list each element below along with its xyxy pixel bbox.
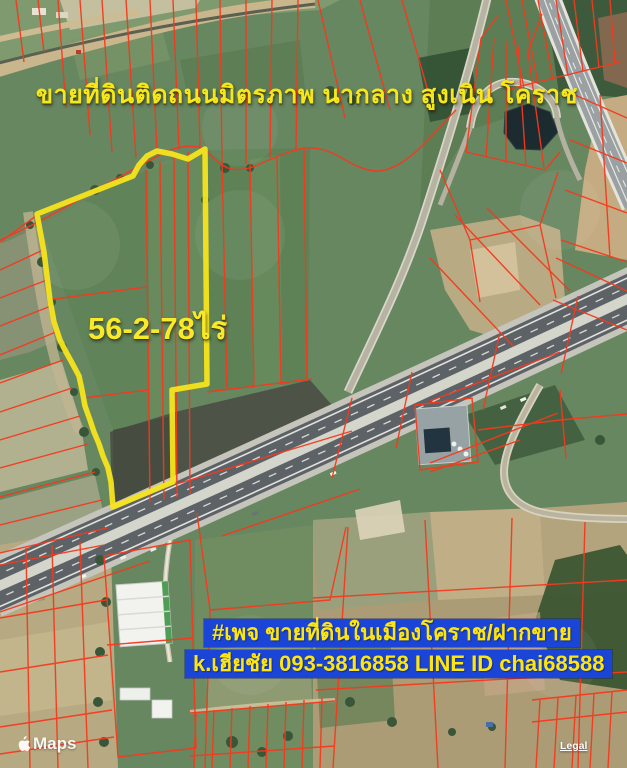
apple-logo-icon bbox=[16, 736, 30, 752]
maps-watermark-text: Maps bbox=[33, 734, 76, 754]
shed-building bbox=[120, 688, 150, 700]
legal-link[interactable]: Legal bbox=[560, 740, 587, 752]
blue-roof-house bbox=[486, 722, 493, 727]
red-roof-house bbox=[76, 50, 81, 54]
contact-banner-phone: k.เฮียชัย 093-3816858 LINE ID chai68588 bbox=[185, 650, 612, 678]
parcel-area-label: 56-2-78ไร่ bbox=[88, 303, 227, 353]
water-facility bbox=[415, 405, 471, 464]
maps-attribution: Maps bbox=[16, 734, 76, 754]
listing-title: ขายที่ดินติดถนนมิตรภาพ นากลาง สูงเนิน โค… bbox=[36, 82, 496, 110]
apple-maps-satellite-view: ขายที่ดินติดถนนมิตรภาพ นากลาง สูงเนิน โค… bbox=[0, 0, 627, 768]
shed-building bbox=[152, 700, 172, 718]
contact-banner-page: #เพจ ขายที่ดินในเมืองโคราช/ฝากขาย bbox=[204, 619, 580, 647]
